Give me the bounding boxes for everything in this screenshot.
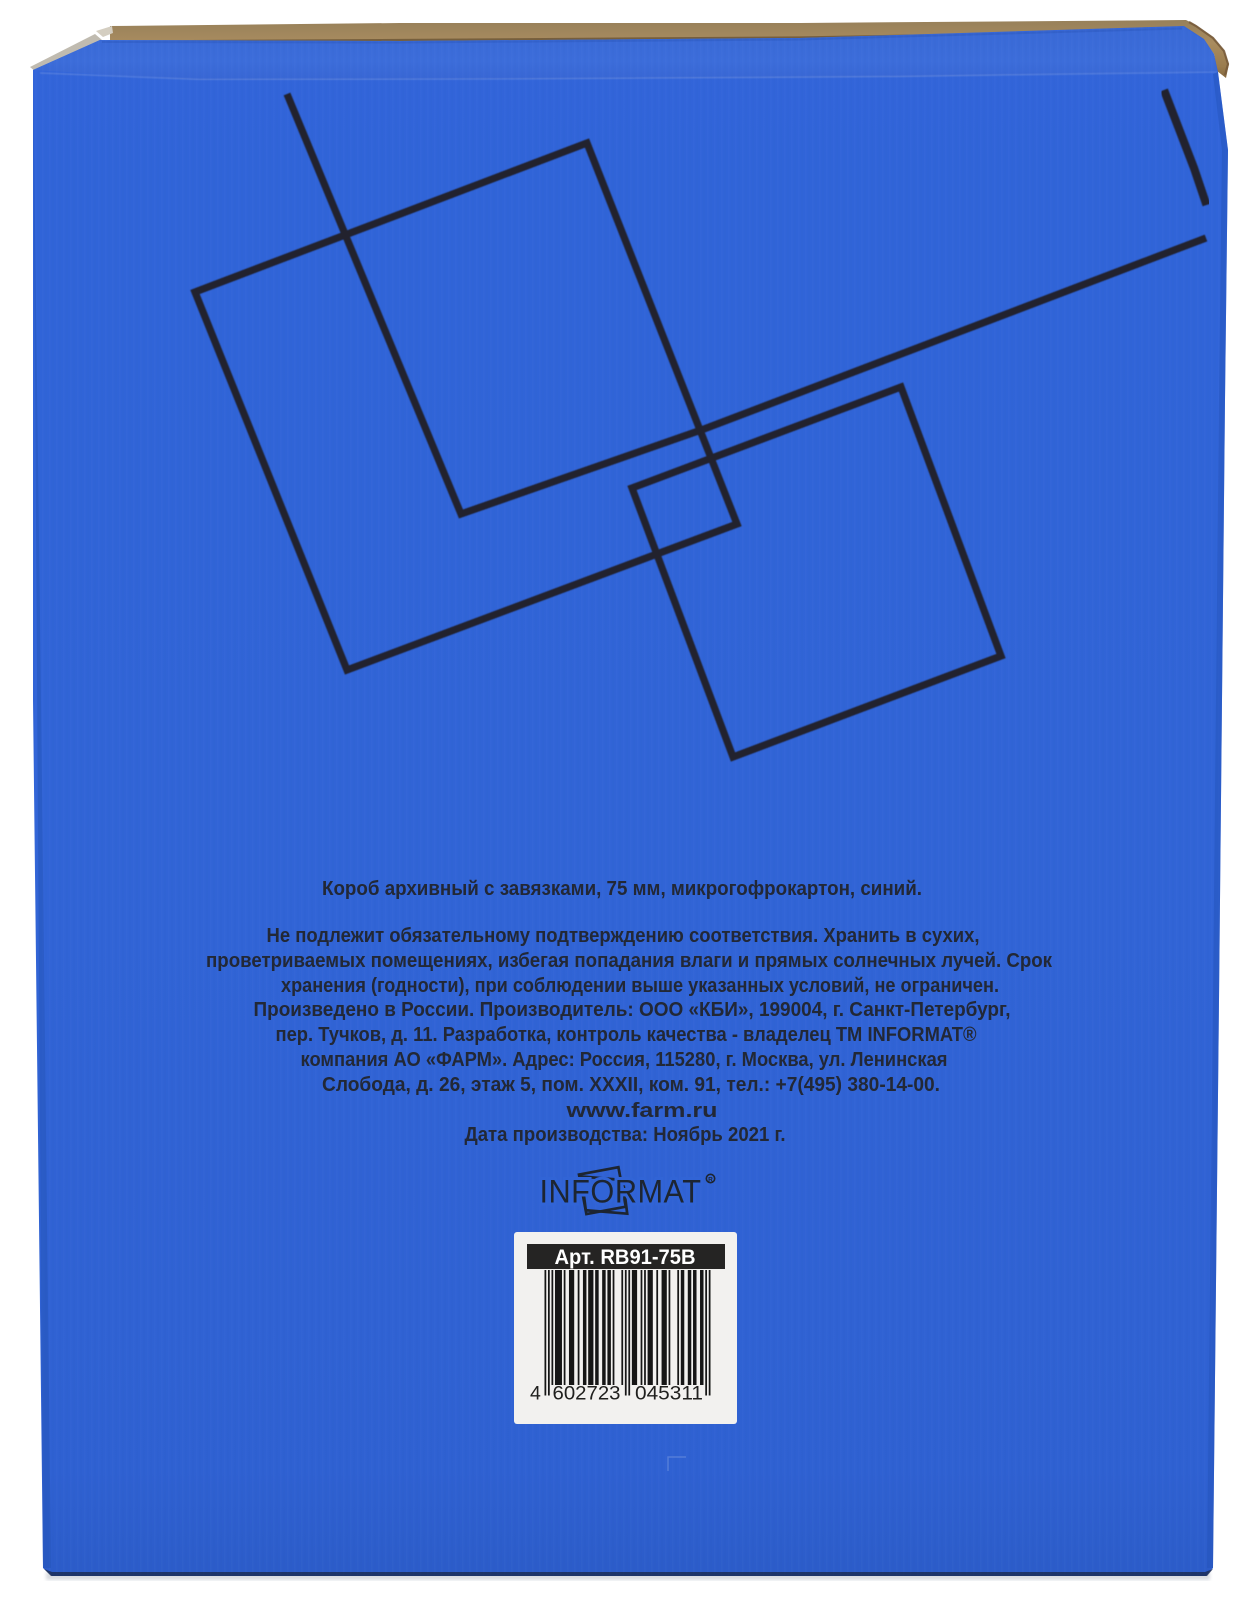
svg-text:4: 4 [530, 1383, 541, 1405]
svg-text:проветриваемых помещениях, изб: проветриваемых помещениях, избегая попад… [206, 950, 1053, 972]
svg-text:пер. Тучков, д. 11. Разработка: пер. Тучков, д. 11. Разработка, контроль… [276, 1024, 977, 1046]
svg-text:602723: 602723 [553, 1383, 621, 1405]
svg-text:R: R [708, 1176, 713, 1183]
svg-text:INFORMAT: INFORMAT [540, 1174, 702, 1210]
svg-text:Дата производства: Ноябрь 2021: Дата производства: Ноябрь 2021 г. [465, 1124, 786, 1146]
svg-text:www.farm.ru: www.farm.ru [565, 1100, 717, 1122]
svg-text:компания АО «ФАРМ». Адрес: Рос: компания АО «ФАРМ». Адрес: Россия, 11528… [301, 1049, 948, 1071]
svg-text:045311: 045311 [635, 1383, 703, 1405]
svg-text:Арт. RB91-75В: Арт. RB91-75В [555, 1245, 696, 1269]
svg-text:Произведено в России. Производ: Произведено в России. Производитель: ООО… [254, 999, 1011, 1021]
svg-text:Не подлежит обязательному подт: Не подлежит обязательному подтверждению … [267, 925, 980, 947]
svg-text:Короб архивный с завязками, 75: Короб архивный с завязками, 75 мм, микро… [322, 878, 922, 900]
svg-text:Слобода, д. 26, этаж 5, пом. X: Слобода, д. 26, этаж 5, пом. XXXII, ком.… [322, 1074, 940, 1096]
svg-text:хранения (годности), при соблю: хранения (годности), при соблюдении выше… [281, 975, 999, 997]
